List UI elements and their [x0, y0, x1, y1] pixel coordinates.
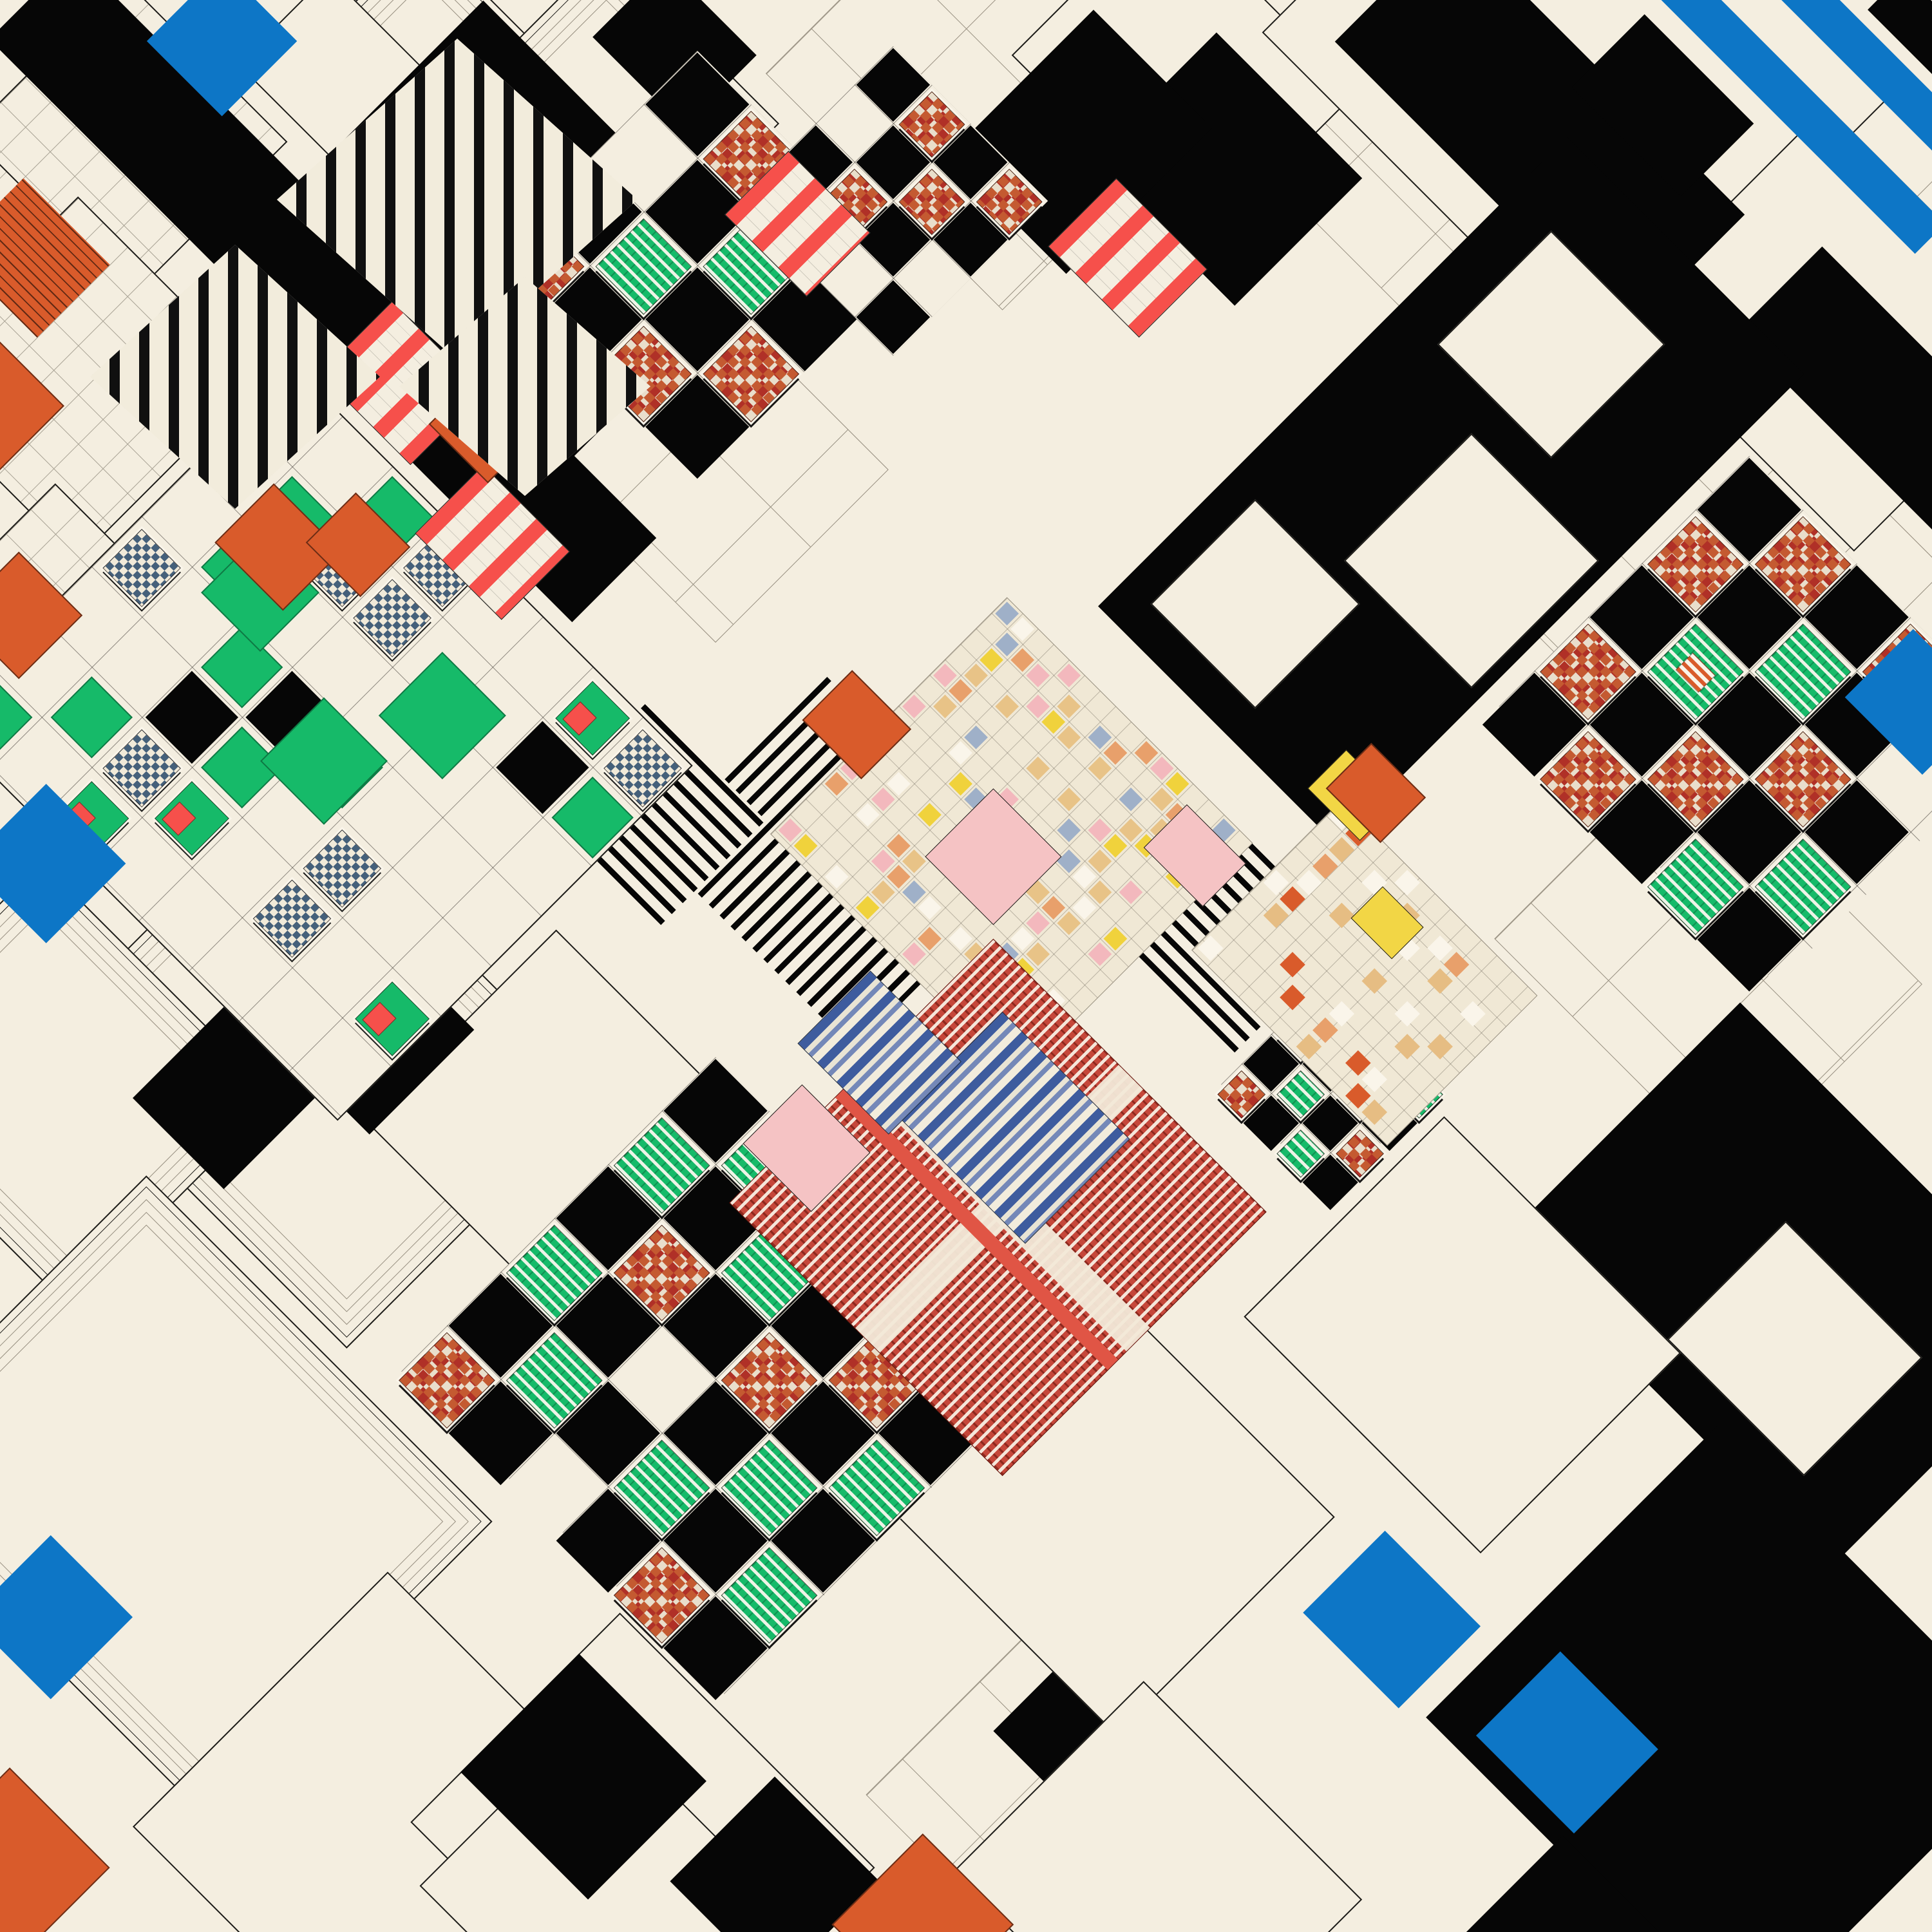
accent-cell: [949, 772, 972, 796]
accent-cell: [1460, 1001, 1486, 1027]
accent-cell: [1057, 695, 1081, 719]
accent-cell: [1088, 942, 1112, 966]
accent-cell: [1057, 911, 1081, 935]
accent-cell: [1104, 927, 1128, 951]
chip-navy-icon: [253, 880, 332, 958]
accent-cell: [1280, 952, 1305, 978]
accent-cell: [1166, 772, 1189, 796]
accent-cell: [1427, 936, 1453, 961]
accent-cell: [1329, 1001, 1355, 1027]
accent-cell: [1264, 903, 1289, 929]
accent-cell: [1057, 663, 1081, 687]
accent-cell: [1264, 870, 1289, 896]
accent-cell: [1088, 880, 1112, 904]
accent-cell: [871, 788, 895, 811]
chip-navy-icon: [303, 829, 381, 908]
accent-cell: [1119, 880, 1143, 904]
accent-cell: [1010, 648, 1034, 672]
accent-cell: [871, 849, 895, 873]
accent-cell: [1361, 1099, 1387, 1125]
accent-cell: [794, 834, 818, 858]
accent-cell: [995, 695, 1019, 719]
accent-cell: [933, 663, 957, 687]
accent-cell: [1041, 896, 1065, 920]
cluster-black-cell: [857, 280, 931, 354]
accent-cell: [1088, 819, 1112, 842]
accent-cell: [1280, 886, 1305, 912]
accent-cell: [918, 803, 942, 827]
accent-cell: [1361, 1066, 1387, 1092]
house-door: [563, 701, 597, 735]
green-cell: [51, 676, 133, 758]
accent-cell: [1026, 942, 1050, 966]
accent-cell: [1444, 952, 1470, 978]
accent-cell: [995, 601, 1019, 625]
rotated-layer: [0, 0, 1932, 1932]
accent-cell: [949, 679, 972, 703]
accent-cell: [1296, 870, 1322, 896]
green-cell: [0, 676, 32, 758]
accent-cell: [1150, 757, 1174, 781]
accent-cell: [856, 896, 880, 920]
accent-cell: [933, 695, 957, 719]
accent-cell: [995, 632, 1019, 656]
accent-cell: [1329, 903, 1355, 929]
accent-cell: [902, 695, 926, 719]
accent-cell: [1150, 788, 1174, 811]
accent-cell: [1345, 1083, 1371, 1109]
house-door: [363, 1002, 397, 1036]
accent-cell: [1088, 757, 1112, 781]
tile-blue: [1303, 1531, 1481, 1709]
accent-cell: [902, 942, 926, 966]
accent-cell: [887, 834, 911, 858]
accent-cell: [887, 772, 911, 796]
accent-cell: [902, 849, 926, 873]
accent-cell: [902, 880, 926, 904]
accent-cell: [1026, 695, 1050, 719]
accent-cell: [1394, 1001, 1420, 1027]
accent-cell: [1057, 849, 1081, 873]
accent-cell: [918, 927, 942, 951]
accent-cell: [1296, 1034, 1322, 1059]
accent-cell: [825, 865, 849, 889]
accent-cell: [871, 880, 895, 904]
house-door: [162, 802, 196, 836]
chip-navy-icon: [102, 529, 181, 607]
accent-cell: [1026, 757, 1050, 781]
accent-cell: [1010, 927, 1034, 951]
accent-cell: [1280, 985, 1305, 1010]
accent-cell: [1329, 837, 1355, 863]
accent-cell: [1072, 865, 1096, 889]
accent-cell: [1312, 1018, 1338, 1043]
accent-cell: [1026, 911, 1050, 935]
accent-cell: [1119, 788, 1143, 811]
accent-cell: [964, 663, 988, 687]
tile-orange: [0, 1768, 110, 1932]
accent-cell: [856, 803, 880, 827]
accent-cell: [1312, 853, 1338, 879]
accent-cell: [949, 927, 972, 951]
accent-cell: [1394, 870, 1420, 896]
accent-cell: [1072, 896, 1096, 920]
accent-cell: [825, 772, 849, 796]
accent-cell: [918, 896, 942, 920]
chip-core-stripes: [1676, 653, 1716, 693]
art-canvas: [0, 0, 1932, 1932]
accent-cell: [1057, 788, 1081, 811]
accent-cell: [1104, 741, 1128, 765]
accent-cell: [1361, 969, 1387, 994]
accent-cell: [980, 648, 1003, 672]
accent-cell: [1057, 726, 1081, 750]
accent-cell: [1198, 936, 1224, 961]
accent-cell: [1026, 663, 1050, 687]
accent-cell: [1427, 1034, 1453, 1059]
accent-cell: [949, 741, 972, 765]
accent-cell: [1010, 617, 1034, 641]
accent-cell: [779, 819, 802, 842]
accent-cell: [1427, 969, 1453, 994]
accent-cell: [1135, 741, 1159, 765]
accent-cell: [1057, 819, 1081, 842]
accent-cell: [1394, 1034, 1420, 1059]
accent-cell: [1088, 726, 1112, 750]
accent-cell: [1119, 819, 1143, 842]
accent-cell: [1041, 710, 1065, 734]
accent-cell: [1345, 1050, 1371, 1076]
accent-cell: [964, 726, 988, 750]
accent-cell: [1104, 834, 1128, 858]
chip-house-icon: [155, 781, 229, 856]
accent-cell: [887, 865, 911, 889]
accent-cell: [1088, 849, 1112, 873]
